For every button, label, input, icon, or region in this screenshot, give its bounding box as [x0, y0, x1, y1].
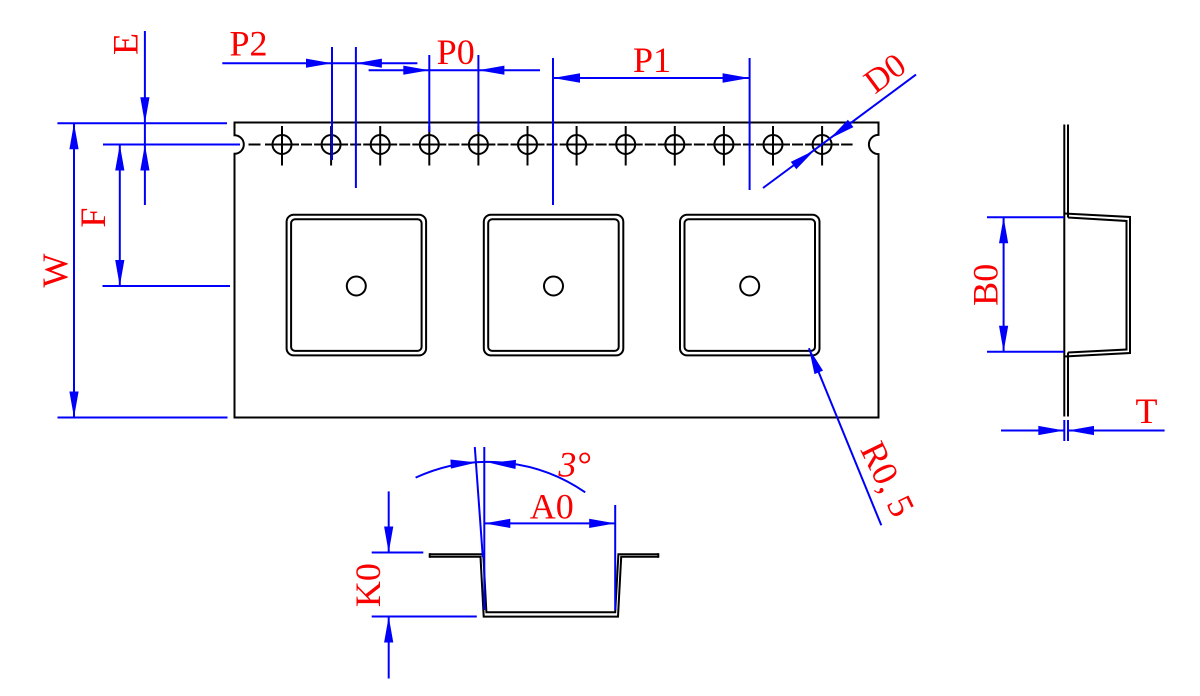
svg-text:K0: K0	[348, 563, 388, 607]
svg-text:3°: 3°	[557, 445, 590, 485]
svg-text:E: E	[106, 33, 146, 55]
svg-text:P0: P0	[437, 32, 475, 72]
svg-text:T: T	[1136, 391, 1158, 431]
svg-text:F: F	[73, 208, 113, 228]
svg-text:P2: P2	[229, 24, 267, 64]
svg-text:P1: P1	[633, 40, 671, 80]
svg-text:A0: A0	[530, 487, 574, 527]
svg-text:W: W	[35, 253, 75, 287]
svg-text:B0: B0	[966, 264, 1006, 306]
